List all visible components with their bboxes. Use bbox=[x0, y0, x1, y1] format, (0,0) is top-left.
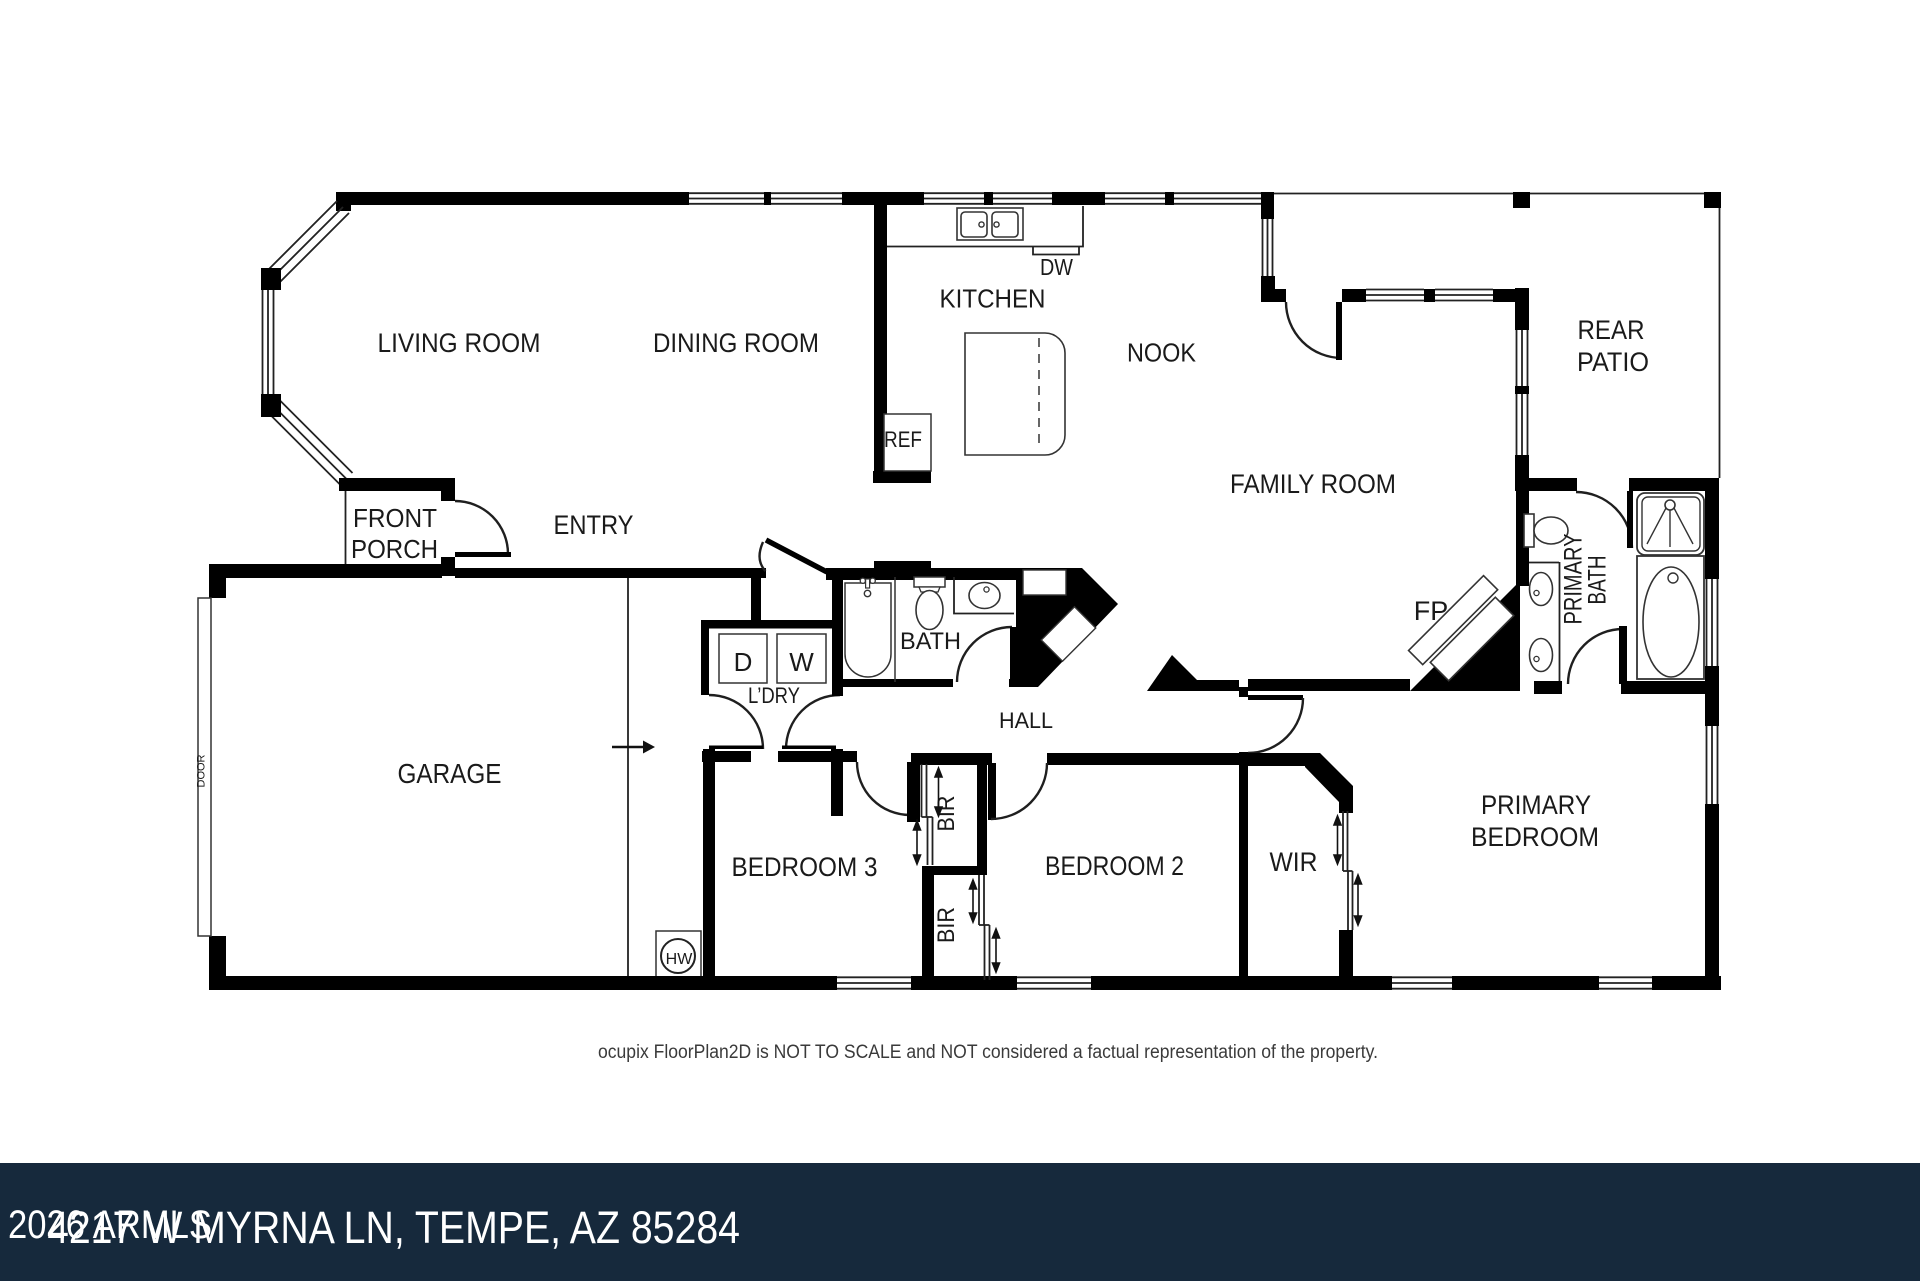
svg-text:BEDROOM 2: BEDROOM 2 bbox=[1045, 851, 1184, 881]
svg-text:WIR: WIR bbox=[1270, 847, 1318, 877]
svg-text:BEDROOM: BEDROOM bbox=[1471, 822, 1599, 852]
svg-text:KITCHEN: KITCHEN bbox=[940, 284, 1046, 314]
svg-text:FRONT: FRONT bbox=[353, 503, 437, 533]
svg-text:FP: FP bbox=[1414, 596, 1449, 626]
svg-text:4217 W MYRNA LN, TEMPE, AZ 852: 4217 W MYRNA LN, TEMPE, AZ 85284 bbox=[47, 1202, 740, 1253]
svg-text:BATH: BATH bbox=[1584, 556, 1612, 605]
svg-text:REF: REF bbox=[884, 427, 922, 452]
svg-text:L’DRY: L’DRY bbox=[748, 683, 800, 708]
svg-text:FAMILY ROOM: FAMILY ROOM bbox=[1230, 469, 1396, 499]
svg-text:W: W bbox=[789, 647, 814, 677]
svg-text:BEDROOM 3: BEDROOM 3 bbox=[732, 852, 878, 882]
svg-text:PRIMARY: PRIMARY bbox=[1481, 790, 1591, 820]
svg-text:HALL: HALL bbox=[999, 708, 1053, 733]
svg-text:BIR: BIR bbox=[933, 907, 960, 943]
svg-text:ocupix FloorPlan2D is NOT TO S: ocupix FloorPlan2D is NOT TO SCALE and N… bbox=[598, 1042, 1378, 1063]
svg-text:D: D bbox=[734, 647, 753, 677]
svg-text:REAR: REAR bbox=[1578, 315, 1645, 345]
svg-text:LIVING ROOM: LIVING ROOM bbox=[378, 328, 541, 358]
svg-text:ENTRY: ENTRY bbox=[554, 510, 634, 540]
svg-text:BATH: BATH bbox=[900, 628, 961, 655]
svg-text:NOOK: NOOK bbox=[1127, 338, 1197, 368]
svg-text:HW: HW bbox=[666, 951, 694, 968]
svg-text:DINING ROOM: DINING ROOM bbox=[653, 328, 819, 358]
svg-text:GARAGE: GARAGE bbox=[398, 758, 502, 789]
svg-text:PORCH: PORCH bbox=[351, 534, 438, 564]
svg-text:PATIO: PATIO bbox=[1577, 347, 1649, 377]
svg-text:DW: DW bbox=[1040, 254, 1073, 280]
svg-text:DOOR: DOOR bbox=[196, 754, 208, 787]
